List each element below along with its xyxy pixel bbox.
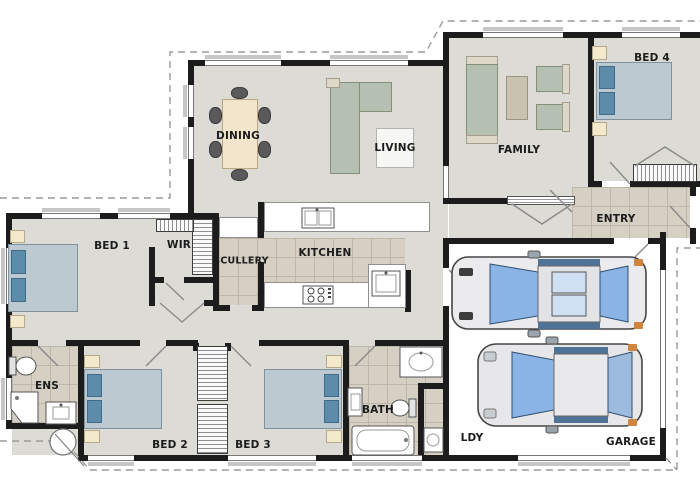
ens-toilet-icon: [9, 357, 36, 375]
cooktop-icon: [303, 286, 333, 304]
room-label-bath: BATH: [362, 404, 394, 416]
car-suv: [478, 337, 642, 433]
bath-toilet-icon: [391, 399, 416, 417]
room-label-wir: WIR: [167, 239, 191, 251]
floor-plan: DINING LIVING FAMILY BED 4 ENTRY BED 1 W…: [0, 0, 700, 500]
room-label-kitchen: KITCHEN: [298, 247, 351, 259]
bathtub-icon: [352, 426, 414, 455]
bath-basin-icon: [348, 388, 362, 416]
ens-shower-icon: [11, 392, 38, 423]
room-label-bed4: BED 4: [634, 52, 670, 64]
ens-vanity-icon: [46, 402, 76, 424]
room-label-bed1: BED 1: [94, 240, 130, 252]
room-label-entry: ENTRY: [596, 213, 635, 225]
car-sedan: [452, 251, 646, 337]
site-marker-symbol: [50, 429, 84, 466]
room-label-living: LIVING: [374, 142, 415, 154]
room-label-scullery: SCULLERY: [213, 256, 268, 267]
room-label-dining: DINING: [216, 130, 260, 142]
kitchen-sink-icon: [372, 271, 400, 296]
room-label-ens: ENS: [35, 380, 59, 392]
room-label-bed2: BED 2: [152, 439, 188, 451]
bath-vanity-icon: [400, 347, 442, 377]
room-label-bed3: BED 3: [235, 439, 271, 451]
island-sink-icon: [302, 208, 334, 228]
room-label-garage: GARAGE: [606, 436, 656, 448]
laundry-tub-icon: [424, 428, 443, 452]
room-label-ldy: LDY: [461, 432, 484, 444]
room-label-family: FAMILY: [498, 144, 540, 156]
